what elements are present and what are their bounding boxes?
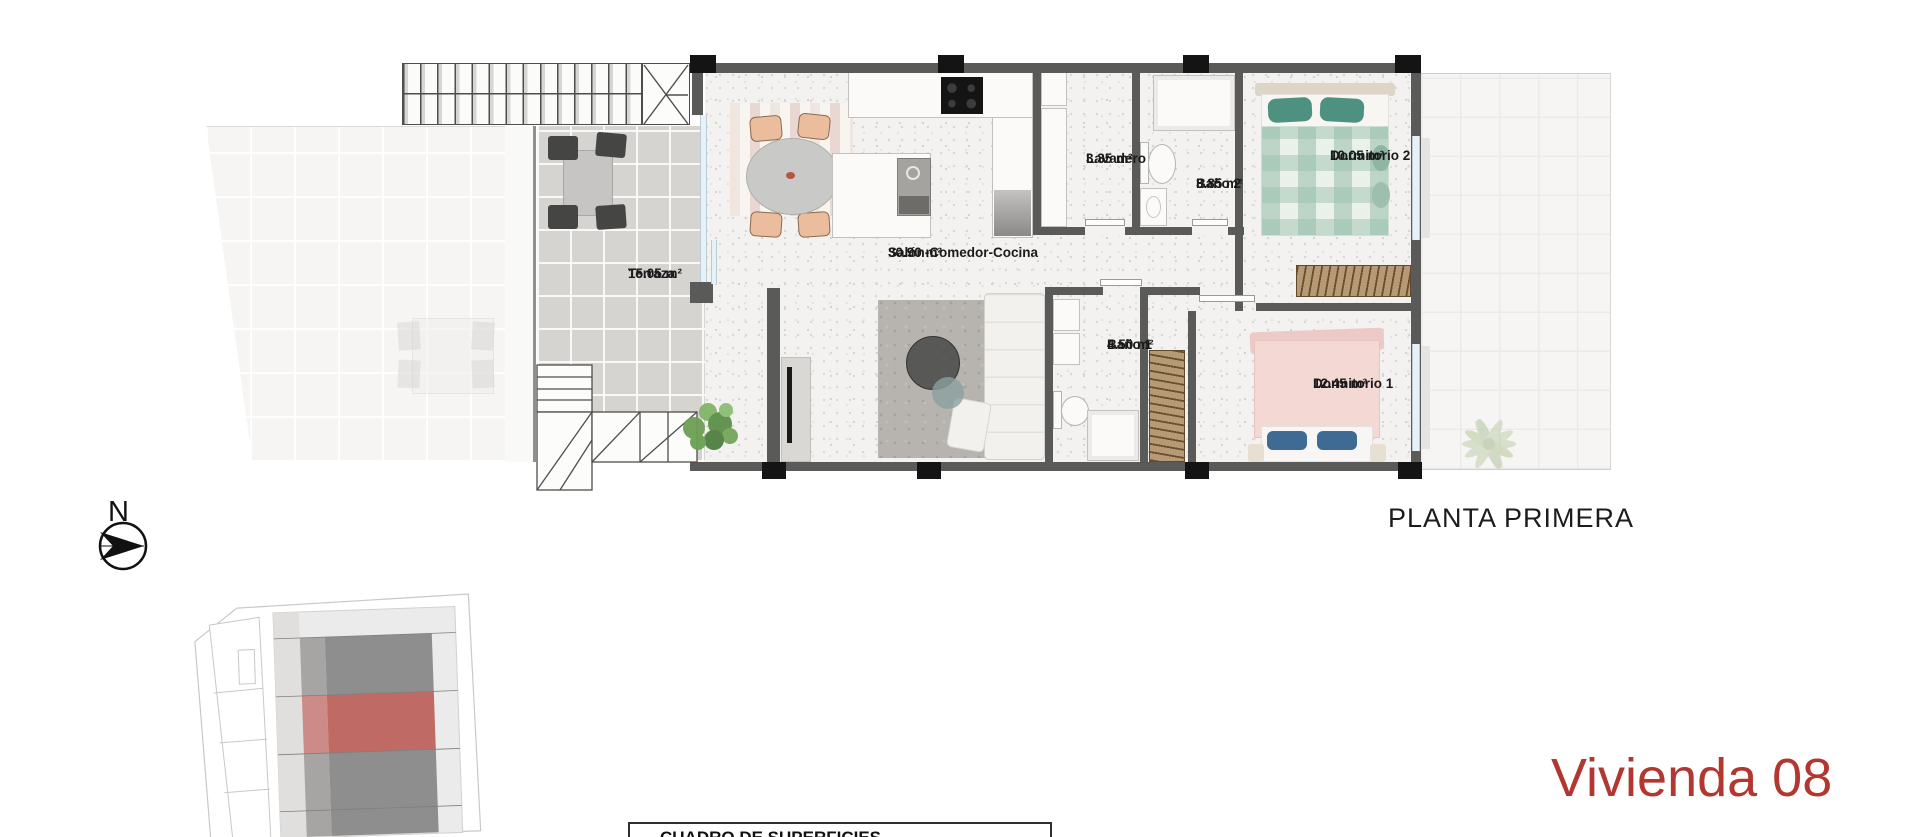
pillar xyxy=(690,55,716,73)
pillar xyxy=(1185,462,1209,479)
neighbor-chair xyxy=(397,359,420,388)
surfaces-table-header: CUADRO DE SUPERFICIES xyxy=(660,827,881,837)
sink-basin-bath2 xyxy=(1146,196,1161,218)
dining-chair xyxy=(797,211,831,238)
unit-label: Vivienda 08 xyxy=(1551,748,1832,808)
window-sill xyxy=(1421,138,1430,238)
wall-laundry-bath2 xyxy=(1132,63,1140,235)
terraza-chair xyxy=(548,136,578,160)
terraza-chair xyxy=(548,205,578,229)
surfaces-table: CUADRO DE SUPERFICIES xyxy=(628,822,1052,837)
north-arrow-icon: N xyxy=(100,496,146,569)
wall-bath1-top-left xyxy=(1045,287,1103,295)
dining-chair xyxy=(749,211,783,238)
dining-chair xyxy=(797,112,831,140)
sofa xyxy=(984,293,1045,460)
wall-kitchen-laundry xyxy=(1033,63,1041,235)
door-opening xyxy=(1192,227,1228,235)
floorplan-page: Terraza 15.05 m² Salón-Comedor-Cocina 30… xyxy=(0,0,1920,837)
table-centerpiece xyxy=(786,172,795,179)
bed2-pillow xyxy=(1319,97,1364,123)
dining-chair xyxy=(749,115,783,143)
bed1-bench xyxy=(1370,444,1386,462)
site-highlight-light xyxy=(302,695,329,754)
bed2-blanket xyxy=(1261,126,1389,236)
laundry-counter xyxy=(1041,108,1067,227)
glass-door-terraza xyxy=(700,115,707,285)
neighbor-terrace-floor xyxy=(206,126,533,462)
pillar xyxy=(917,462,941,479)
site-plan xyxy=(194,594,481,837)
pillar xyxy=(762,462,786,479)
window-bedroom1 xyxy=(1412,344,1420,451)
sink1-bath1 xyxy=(1053,299,1080,331)
toilet-bath1 xyxy=(1061,396,1089,426)
tv-cabinet xyxy=(781,357,811,462)
common-stairs-upper xyxy=(402,63,642,125)
neighbor-chair xyxy=(397,321,421,350)
site-highlight-unit xyxy=(327,691,436,753)
glass-side-terraza xyxy=(711,240,717,284)
door-leaf-bedroom2 xyxy=(1199,295,1255,302)
room-area: 4.50 m² xyxy=(1107,337,1154,353)
terraza-chair xyxy=(595,204,627,230)
room-area: 3.35 m² xyxy=(1086,151,1133,167)
terrace-divider-wall xyxy=(533,126,536,462)
terraza-chair xyxy=(595,132,627,159)
wall-tv xyxy=(767,288,780,471)
pillar xyxy=(938,55,964,73)
wall-bath1-left xyxy=(1045,287,1053,462)
wardrobe-bedroom2 xyxy=(1296,265,1411,297)
room-area: 30.90 m² xyxy=(888,245,942,261)
bed1-bench xyxy=(1248,444,1264,462)
bed2-cushion xyxy=(1372,182,1390,208)
wall-bedroom2-hall xyxy=(1256,303,1411,311)
pillar xyxy=(1183,55,1209,73)
bed2-pillow xyxy=(1267,97,1312,123)
bed1-pillow xyxy=(1317,431,1357,450)
plan-title: PLANTA PRIMERA xyxy=(1388,502,1634,534)
door-leaf-bath2 xyxy=(1192,219,1228,226)
door-opening xyxy=(1085,227,1125,235)
wall-pillar-mid xyxy=(690,282,713,303)
cooktop xyxy=(941,77,983,114)
sink-basin xyxy=(899,196,929,214)
shower-bath2 xyxy=(1153,75,1235,131)
room-area: 15.05 m² xyxy=(628,266,682,282)
room-area: 12.45 m² xyxy=(1313,376,1367,392)
wall-bedroom1-left xyxy=(1188,311,1196,462)
window-sill xyxy=(1421,346,1430,449)
right-terrace-floor xyxy=(1421,73,1611,470)
side-table xyxy=(932,377,964,409)
bed1-pillow xyxy=(1267,431,1307,450)
neighbor-chair xyxy=(471,321,495,350)
shower-bath1 xyxy=(1087,410,1139,461)
stairs-landing xyxy=(642,63,690,125)
wall-bottom xyxy=(690,462,1421,471)
svg-text:N: N xyxy=(108,496,129,528)
sink-faucet-icon xyxy=(906,166,920,180)
wall-bath1-right xyxy=(1140,295,1148,462)
wall-top xyxy=(690,63,1421,73)
door-leaf-bath1 xyxy=(1100,279,1142,286)
room-area: 10.05 m² xyxy=(1330,148,1384,164)
laundry-cabinet xyxy=(1041,73,1067,106)
neighbor-chair xyxy=(471,359,494,388)
sink2-bath1 xyxy=(1053,333,1080,365)
room-area: 3.85 m² xyxy=(1196,176,1243,192)
pillar xyxy=(1395,55,1421,73)
door-leaf-laundry xyxy=(1085,219,1125,226)
wall-bath1-top-right xyxy=(1140,287,1200,295)
pillar xyxy=(1398,462,1422,479)
terrace-edge-strip xyxy=(505,126,533,462)
wardrobe-bedroom1 xyxy=(1149,350,1185,462)
tv xyxy=(787,367,792,443)
kitchen-appliance xyxy=(994,190,1031,236)
window-bedroom2 xyxy=(1412,136,1420,240)
toilet-bath2 xyxy=(1148,144,1176,184)
